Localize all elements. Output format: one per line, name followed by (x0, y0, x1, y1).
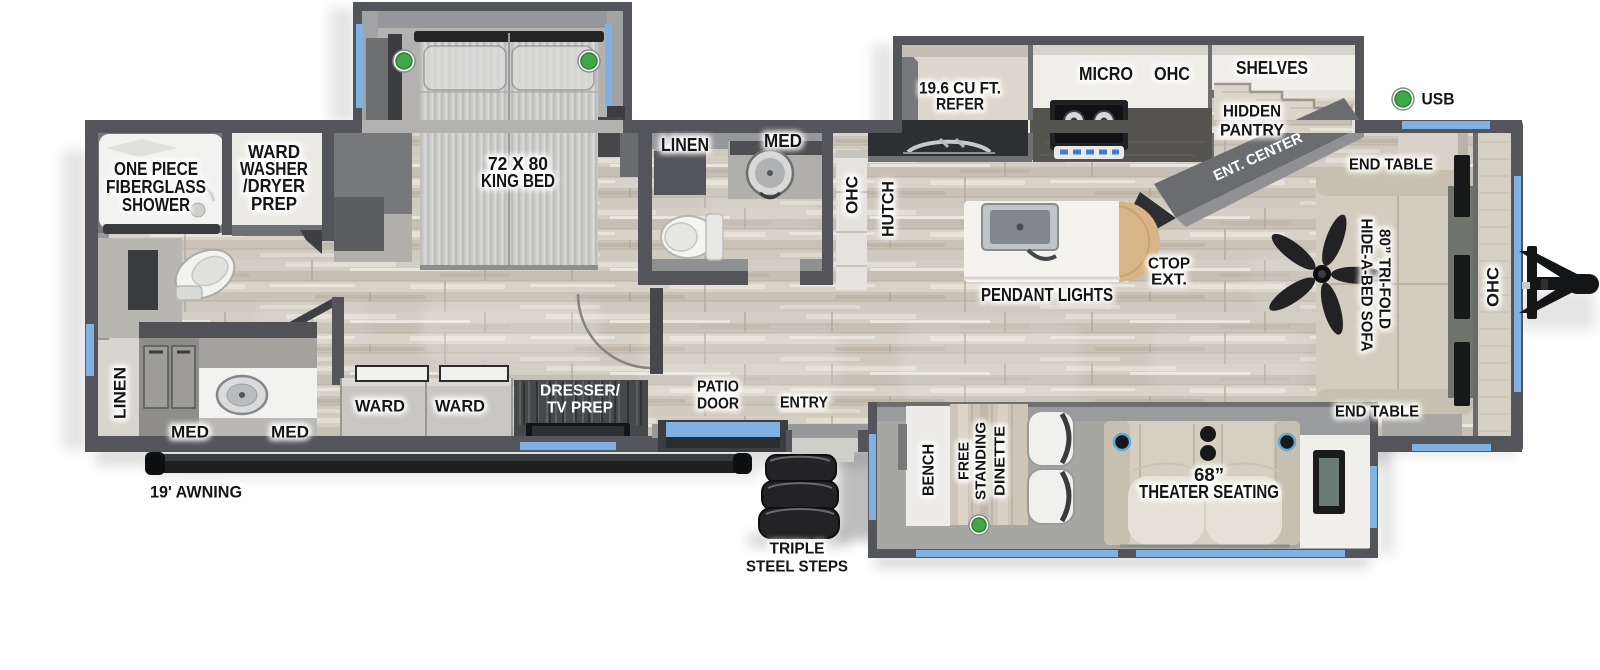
svg-text:MED: MED (764, 131, 802, 151)
svg-text:REFER: REFER (936, 95, 984, 114)
svg-text:FREE: FREE (956, 442, 973, 480)
svg-text:ONE PIECE: ONE PIECE (114, 159, 198, 179)
svg-text:MICRO: MICRO (1079, 64, 1133, 84)
svg-text:/DRYER: /DRYER (243, 176, 305, 196)
svg-text:PANTRY: PANTRY (1220, 121, 1285, 140)
svg-text:STEEL STEPS: STEEL STEPS (746, 559, 848, 576)
svg-text:SHOWER: SHOWER (122, 195, 190, 215)
svg-text:FIBERGLASS: FIBERGLASS (106, 177, 206, 197)
svg-text:19' AWNING: 19' AWNING (150, 483, 242, 502)
svg-text:LINEN: LINEN (661, 135, 709, 155)
svg-text:OHC: OHC (1154, 64, 1190, 84)
svg-text:80” TRI-FOLD: 80” TRI-FOLD (1376, 229, 1393, 329)
svg-text:CTOP: CTOP (1148, 256, 1190, 273)
svg-text:STANDING: STANDING (973, 422, 990, 500)
svg-text:WARD: WARD (355, 397, 405, 416)
svg-text:LINEN: LINEN (111, 367, 130, 419)
svg-text:KING BED: KING BED (481, 171, 555, 191)
svg-text:OHC: OHC (1484, 267, 1503, 307)
svg-text:WARD: WARD (435, 397, 485, 416)
svg-text:DRESSER/: DRESSER/ (540, 383, 621, 400)
svg-text:PATIO: PATIO (697, 379, 739, 396)
svg-text:TV PREP: TV PREP (547, 400, 613, 417)
svg-text:USB: USB (1422, 90, 1455, 109)
svg-text:DOOR: DOOR (697, 396, 739, 413)
svg-text:HIDDEN: HIDDEN (1223, 102, 1281, 121)
svg-text:EXT.: EXT. (1151, 272, 1187, 289)
svg-text:HIDE-A-BED SOFA: HIDE-A-BED SOFA (1358, 219, 1375, 352)
svg-text:THEATER SEATING: THEATER SEATING (1139, 482, 1279, 502)
svg-text:ENTRY: ENTRY (780, 395, 828, 412)
svg-text:DINETTE: DINETTE (992, 426, 1009, 496)
svg-text:OHC: OHC (843, 176, 862, 214)
svg-text:TRIPLE: TRIPLE (770, 541, 825, 558)
svg-text:HUTCH: HUTCH (879, 181, 898, 237)
svg-text:MED: MED (171, 423, 209, 442)
svg-text:PREP: PREP (251, 194, 297, 214)
svg-text:END TABLE: END TABLE (1349, 157, 1433, 174)
svg-text:BENCH: BENCH (921, 444, 938, 496)
svg-text:SHELVES: SHELVES (1236, 58, 1308, 78)
svg-text:MED: MED (271, 423, 309, 442)
svg-text:PENDANT LIGHTS: PENDANT LIGHTS (981, 285, 1113, 305)
svg-text:END TABLE: END TABLE (1335, 404, 1419, 421)
